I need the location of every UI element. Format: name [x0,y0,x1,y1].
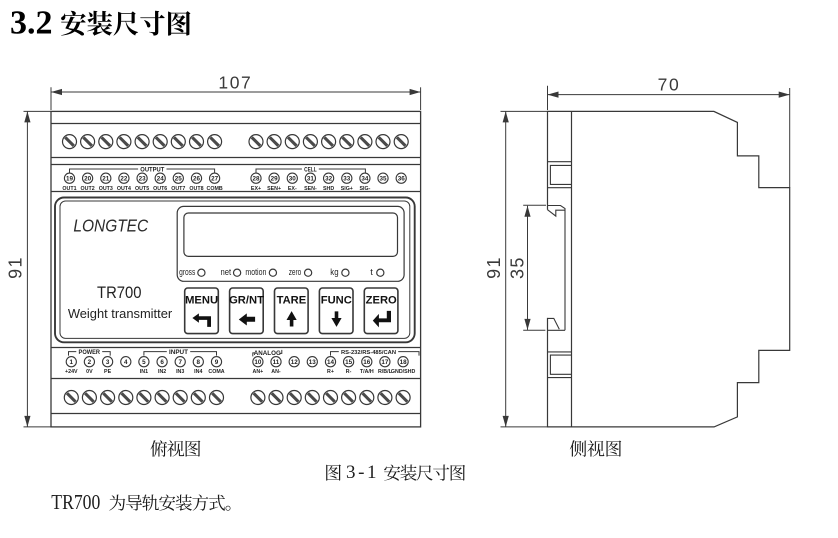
svg-text:2: 2 [88,359,92,366]
svg-text:T/A/H: T/A/H [360,369,374,375]
svg-text:15: 15 [345,359,353,366]
svg-text:EX-: EX- [288,186,297,192]
svg-text:11: 11 [273,359,280,366]
svg-text:28: 28 [252,176,260,183]
svg-text:TR700: TR700 [97,284,142,302]
svg-text:motion: motion [245,267,266,277]
svg-text:17: 17 [381,359,389,366]
svg-text:ZERO: ZERO [366,294,397,306]
svg-text:R-: R- [346,369,352,375]
svg-text:GND/SHD: GND/SHD [391,369,416,375]
svg-text:107: 107 [218,72,252,92]
svg-text:33: 33 [343,176,351,183]
svg-text:MENU: MENU [185,294,218,306]
svg-text:3-1: 3-1 [346,462,379,483]
svg-text:IN3: IN3 [176,369,184,375]
svg-text:29: 29 [271,176,279,183]
svg-text:Weight transmitter: Weight transmitter [68,306,173,321]
svg-text:RS-232/RS-485/CAN: RS-232/RS-485/CAN [341,350,396,356]
svg-text:SEN-: SEN- [304,186,317,192]
svg-text:OUT8: OUT8 [189,186,203,192]
svg-text:0V: 0V [86,369,93,375]
svg-text:OUT3: OUT3 [99,186,113,192]
svg-text:5: 5 [142,359,146,366]
svg-text:13: 13 [309,359,317,366]
svg-text:30: 30 [289,176,297,183]
svg-text:OUT7: OUT7 [171,186,185,192]
svg-text:+24V: +24V [65,369,78,375]
svg-text:net: net [221,267,232,277]
svg-text:21: 21 [102,176,110,183]
svg-text:SEN+: SEN+ [267,186,281,192]
svg-text:COMB: COMB [207,186,223,192]
svg-text:10: 10 [254,359,262,366]
svg-text:zero: zero [289,267,302,277]
svg-text:70: 70 [658,75,681,95]
svg-text:IN2: IN2 [158,369,166,375]
svg-text:FUNC: FUNC [321,294,352,306]
svg-text:18: 18 [400,359,408,366]
svg-text:INPUT: INPUT [169,349,188,356]
svg-text:16: 16 [363,359,371,366]
svg-text:AN+: AN+ [253,369,264,375]
svg-text:OUTPUT: OUTPUT [140,166,164,173]
svg-text:POWER: POWER [79,349,101,356]
svg-text:6: 6 [160,359,164,366]
svg-text:8: 8 [197,359,201,366]
svg-text:9: 9 [215,359,219,366]
svg-text:LONGTEC: LONGTEC [73,215,148,235]
svg-text:3.2: 3.2 [10,4,53,41]
svg-text:14: 14 [327,359,335,366]
svg-text:R+: R+ [327,369,334,375]
svg-text:22: 22 [120,176,128,183]
svg-text:AN-: AN- [271,369,281,375]
svg-text:OUT5: OUT5 [135,186,149,192]
svg-text:31: 31 [307,176,315,183]
svg-text:91: 91 [484,256,504,279]
svg-text:32: 32 [325,176,333,183]
svg-text:27: 27 [211,176,219,183]
svg-text:IN1: IN1 [140,369,148,375]
svg-text:IN4: IN4 [194,369,202,375]
svg-text:OUT6: OUT6 [153,186,167,192]
svg-text:23: 23 [139,176,147,183]
svg-text:25: 25 [175,176,183,183]
svg-text:COMA: COMA [208,369,224,375]
svg-text:gross: gross [179,267,195,277]
svg-text:35: 35 [379,176,387,183]
svg-text:91: 91 [5,256,25,279]
svg-text:4: 4 [124,359,128,366]
svg-text:20: 20 [84,176,92,183]
svg-text:OUT4: OUT4 [117,186,131,192]
svg-text:PE: PE [104,369,112,375]
svg-text:EX+: EX+ [251,186,261,192]
svg-text:24: 24 [157,176,165,183]
svg-text:SIG+: SIG+ [341,186,353,192]
svg-text:TARE: TARE [277,294,307,306]
svg-text:TR700: TR700 [51,490,100,514]
svg-text:34: 34 [361,176,369,183]
svg-text:7: 7 [178,359,182,366]
svg-text:19: 19 [66,176,74,183]
svg-text:3: 3 [106,359,110,366]
svg-text:35: 35 [508,256,528,279]
svg-text:OUT2: OUT2 [81,186,95,192]
svg-text:SIG-: SIG- [359,186,370,192]
svg-text:kg: kg [330,267,338,277]
svg-text:CELL: CELL [304,166,317,173]
svg-text:SHD: SHD [323,186,334,192]
svg-text:26: 26 [193,176,201,183]
svg-text:12: 12 [291,359,299,366]
svg-text:t: t [370,267,373,277]
svg-text:1: 1 [70,359,74,366]
svg-text:GR/NT: GR/NT [229,294,264,306]
svg-text:36: 36 [398,176,406,183]
svg-text:OUT1: OUT1 [62,186,76,192]
